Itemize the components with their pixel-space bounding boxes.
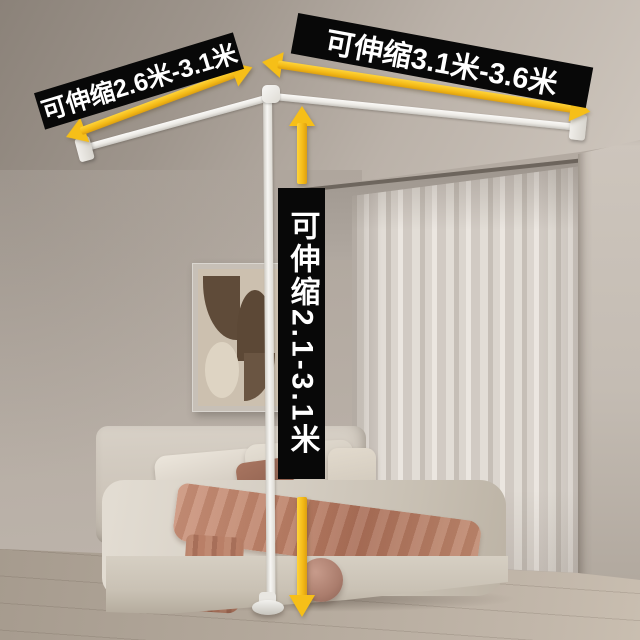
corner-joint xyxy=(262,85,280,103)
arrow-down-icon xyxy=(289,497,315,617)
arrow-up-icon xyxy=(289,106,315,184)
arrow-shaft xyxy=(297,123,307,184)
pole-floor-base xyxy=(252,600,284,615)
dimension-label-vertical-pole: 可伸缩2.1-3.1米 xyxy=(278,188,325,479)
art-shape-disc xyxy=(205,342,239,398)
art-shape-arch-dark xyxy=(203,276,240,340)
dimension-text: 可伸缩2.1-3.1米 xyxy=(280,210,324,456)
arrowhead-icon xyxy=(289,595,315,617)
product-image: 可伸缩2.6米-3.1米 可伸缩3.1米-3.6米 可伸缩2.1-3.1米 xyxy=(0,0,640,640)
arrow-shaft xyxy=(297,497,307,597)
right-wall xyxy=(578,140,640,588)
